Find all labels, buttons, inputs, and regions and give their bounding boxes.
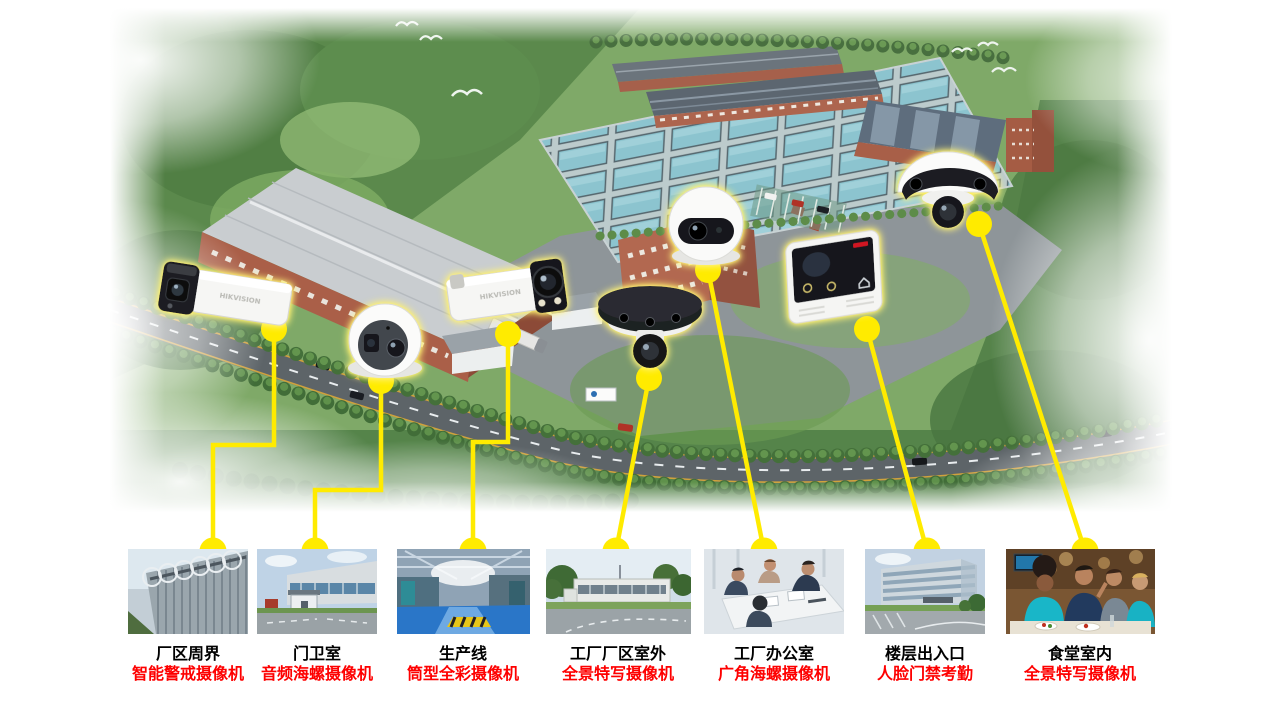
factory-outdoor-photo bbox=[546, 549, 691, 634]
camera-type-label: 全景特写摄像机 bbox=[1024, 664, 1136, 684]
camera-type-label: 全景特写摄像机 bbox=[562, 664, 674, 684]
solution-slide: { "slide": { "brand": "HIKVISION", "conn… bbox=[0, 0, 1280, 720]
camera-type-label: 音频海螺摄像机 bbox=[261, 664, 373, 684]
canteen-photo bbox=[1006, 549, 1155, 634]
location-label: 厂区周界 bbox=[132, 644, 244, 664]
item-label-6: 楼层出入口 人脸门禁考勤 bbox=[877, 644, 973, 684]
item-label-7: 食堂室内 全景特写摄像机 bbox=[1024, 644, 1136, 684]
location-label: 食堂室内 bbox=[1024, 644, 1136, 664]
camera-type-label: 人脸门禁考勤 bbox=[877, 664, 973, 684]
camera-type-label: 筒型全彩摄像机 bbox=[407, 664, 519, 684]
location-label: 工厂办公室 bbox=[718, 644, 830, 664]
item-label-3: 生产线 筒型全彩摄像机 bbox=[407, 644, 519, 684]
camera-type-label: 广角海螺摄像机 bbox=[718, 664, 830, 684]
location-label: 生产线 bbox=[407, 644, 519, 664]
location-label: 工厂厂区室外 bbox=[562, 644, 674, 664]
guard-house-photo bbox=[257, 549, 377, 634]
item-label-4: 工厂厂区室外 全景特写摄像机 bbox=[562, 644, 674, 684]
perimeter-fence-photo bbox=[128, 549, 248, 634]
item-label-5: 工厂办公室 广角海螺摄像机 bbox=[718, 644, 830, 684]
camera-type-label: 智能警戒摄像机 bbox=[132, 664, 244, 684]
factory-office-photo bbox=[704, 549, 844, 634]
item-label-1: 厂区周界 智能警戒摄像机 bbox=[132, 644, 244, 684]
floor-entrance-photo bbox=[865, 549, 985, 634]
location-label: 门卫室 bbox=[261, 644, 373, 664]
aerial-factory-scene bbox=[0, 0, 1280, 520]
production-line-photo bbox=[397, 549, 530, 634]
item-label-2: 门卫室 音频海螺摄像机 bbox=[261, 644, 373, 684]
location-label: 楼层出入口 bbox=[877, 644, 973, 664]
